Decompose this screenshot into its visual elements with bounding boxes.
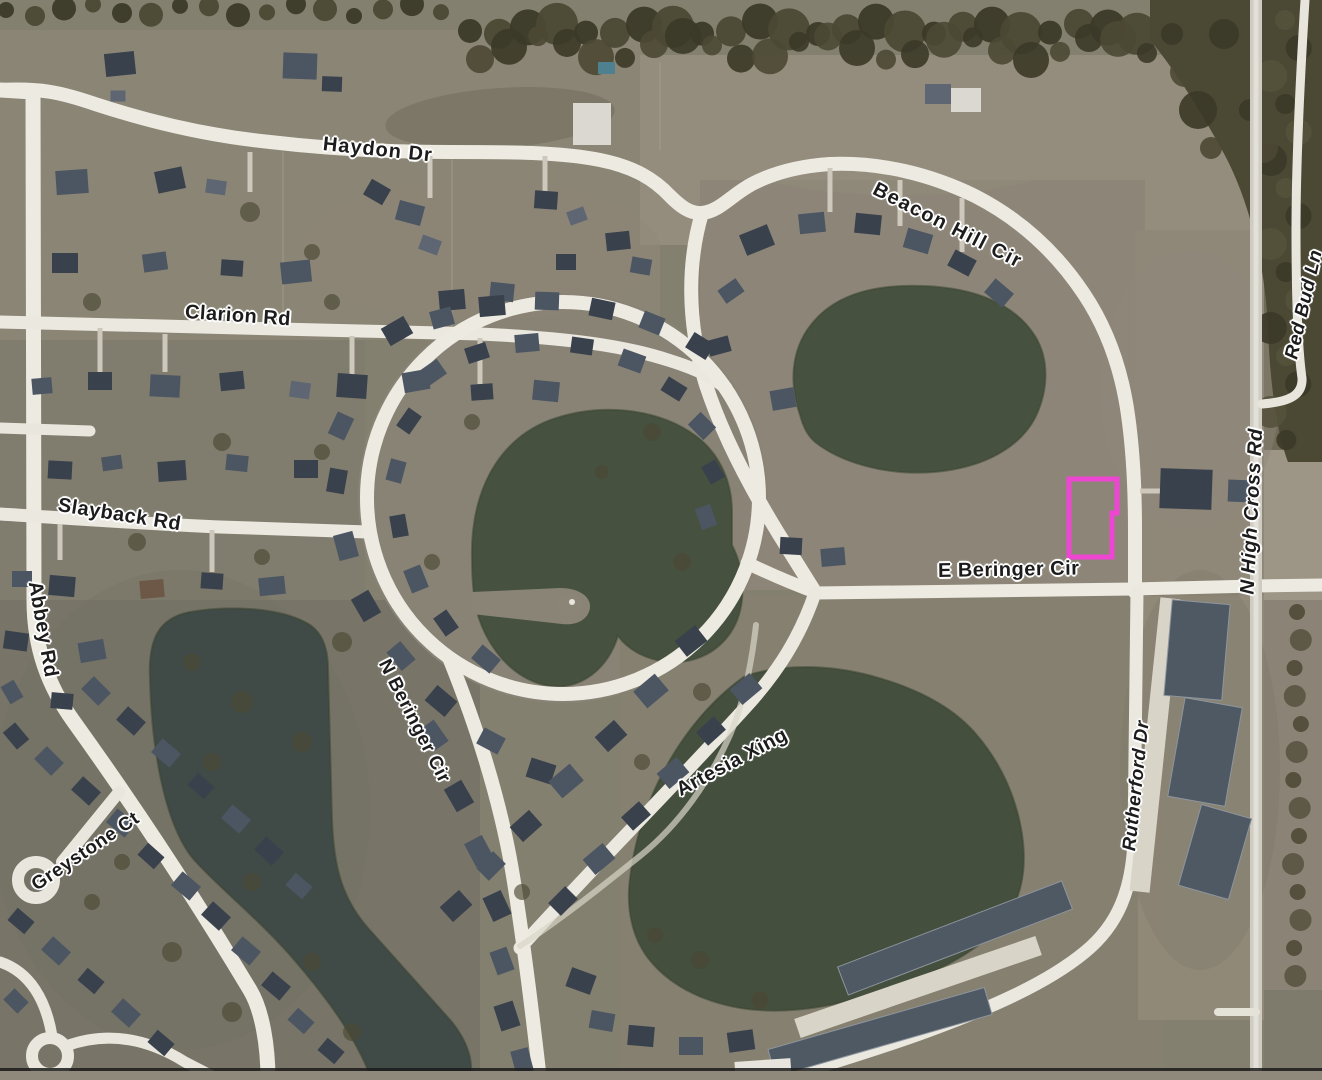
house-roof bbox=[780, 537, 803, 555]
house-roof bbox=[532, 380, 560, 403]
house-roof bbox=[52, 253, 78, 273]
tree bbox=[1290, 884, 1306, 900]
house-roof bbox=[727, 1029, 756, 1052]
tree bbox=[139, 3, 163, 27]
house-roof bbox=[50, 692, 73, 710]
house-roof bbox=[627, 1025, 655, 1047]
tree bbox=[226, 3, 250, 27]
house-roof bbox=[514, 333, 539, 353]
house-roof bbox=[556, 254, 576, 270]
house-roof bbox=[258, 576, 286, 597]
tree bbox=[716, 16, 746, 46]
house-roof bbox=[573, 103, 611, 145]
pond-beacon-hill bbox=[793, 286, 1045, 473]
tree bbox=[464, 414, 480, 430]
house-roof bbox=[104, 51, 136, 77]
tree bbox=[1200, 137, 1222, 159]
tree bbox=[673, 553, 691, 571]
tree bbox=[1038, 21, 1062, 45]
tree bbox=[1290, 909, 1312, 931]
tree bbox=[304, 244, 320, 260]
pool bbox=[598, 62, 615, 74]
tree bbox=[346, 8, 362, 24]
house-roof bbox=[139, 579, 164, 599]
house-roof bbox=[1159, 468, 1212, 510]
tree bbox=[1170, 57, 1200, 87]
tree bbox=[615, 48, 635, 68]
road-side-stub bbox=[0, 428, 90, 431]
tree bbox=[292, 732, 312, 752]
tree bbox=[1284, 965, 1306, 987]
house-roof bbox=[630, 256, 652, 275]
house-roof bbox=[220, 259, 243, 276]
house-roof bbox=[111, 91, 126, 102]
tree bbox=[647, 927, 663, 943]
tree bbox=[314, 444, 330, 460]
tree bbox=[789, 32, 809, 52]
image-edge-strip bbox=[0, 1071, 1322, 1080]
tree bbox=[1209, 19, 1239, 49]
house-roof bbox=[769, 387, 796, 411]
tree bbox=[1293, 716, 1309, 732]
tree bbox=[84, 894, 100, 910]
house-roof bbox=[48, 575, 76, 597]
house-roof bbox=[470, 383, 493, 400]
tree bbox=[1286, 940, 1302, 956]
house-roof bbox=[294, 460, 318, 478]
house-roof bbox=[478, 295, 506, 317]
tree bbox=[1275, 94, 1295, 114]
tree bbox=[693, 683, 711, 701]
tree bbox=[25, 6, 45, 26]
tree bbox=[1289, 604, 1305, 620]
tree bbox=[332, 632, 352, 652]
house-roof bbox=[798, 212, 826, 235]
aerial-map[interactable]: Haydon Dr Beacon Hill Cir Clarion Rd Sla… bbox=[0, 0, 1322, 1080]
house-roof bbox=[820, 547, 845, 567]
tree bbox=[114, 854, 130, 870]
tree bbox=[876, 50, 896, 70]
road-label-e-beringer-cir: E Beringer Cir bbox=[938, 558, 1080, 583]
house-roof bbox=[534, 190, 558, 210]
tree bbox=[1137, 43, 1157, 63]
tree bbox=[595, 465, 609, 479]
tree bbox=[643, 423, 661, 441]
house-roof bbox=[142, 251, 168, 272]
tree bbox=[231, 691, 253, 713]
house-roof bbox=[200, 572, 223, 589]
house-roof bbox=[570, 337, 594, 356]
house-roof bbox=[336, 373, 368, 399]
house-roof bbox=[854, 213, 882, 236]
house-roof bbox=[289, 381, 311, 400]
tree bbox=[213, 433, 231, 451]
tree bbox=[222, 1002, 242, 1022]
house-roof bbox=[438, 289, 466, 311]
map-canvas bbox=[0, 0, 1322, 1080]
house-roof bbox=[205, 179, 227, 196]
house-roof bbox=[3, 630, 29, 651]
tree bbox=[600, 18, 630, 48]
house-roof bbox=[157, 460, 186, 482]
tree bbox=[254, 549, 270, 565]
tree bbox=[433, 4, 449, 20]
tree bbox=[691, 951, 709, 969]
tree bbox=[128, 533, 146, 551]
house-roof bbox=[88, 372, 112, 390]
house-roof bbox=[322, 76, 343, 92]
tree bbox=[1289, 797, 1311, 819]
house-roof bbox=[55, 169, 89, 195]
tree bbox=[1275, 10, 1295, 30]
house-roof bbox=[925, 84, 951, 104]
tree bbox=[1285, 772, 1301, 788]
house-roof bbox=[48, 460, 73, 479]
tree bbox=[1284, 685, 1306, 707]
tree bbox=[1290, 629, 1312, 651]
tree bbox=[162, 942, 182, 962]
tree bbox=[751, 991, 769, 1009]
house-roof bbox=[535, 292, 560, 311]
tree bbox=[373, 0, 393, 19]
tree bbox=[424, 554, 440, 570]
house-roof bbox=[149, 374, 180, 398]
tree bbox=[1287, 660, 1303, 676]
tree bbox=[343, 1023, 361, 1041]
tree bbox=[514, 884, 530, 900]
tree bbox=[1013, 42, 1049, 78]
house-roof bbox=[283, 52, 318, 79]
tree bbox=[1291, 828, 1307, 844]
tree bbox=[1282, 853, 1304, 875]
house-roof bbox=[280, 259, 312, 284]
tree bbox=[1286, 741, 1308, 763]
tree bbox=[324, 294, 340, 310]
tree bbox=[1161, 23, 1183, 45]
tree bbox=[1050, 42, 1070, 62]
tree bbox=[203, 753, 221, 771]
island-dock bbox=[569, 599, 575, 605]
pond-island bbox=[558, 593, 582, 617]
tree bbox=[1276, 430, 1296, 450]
tree bbox=[1179, 91, 1217, 129]
tree bbox=[112, 3, 132, 23]
tree bbox=[634, 754, 650, 770]
tree bbox=[466, 45, 494, 73]
tree bbox=[83, 293, 101, 311]
house-roof bbox=[219, 371, 245, 391]
house-roof bbox=[951, 88, 981, 112]
tree bbox=[727, 45, 755, 73]
house-roof bbox=[225, 454, 249, 472]
house-roof bbox=[31, 377, 52, 395]
tree bbox=[458, 19, 482, 43]
tree bbox=[303, 953, 321, 971]
house-roof bbox=[101, 455, 123, 472]
image-edge-line bbox=[0, 1068, 1322, 1071]
tree bbox=[243, 873, 261, 891]
tree bbox=[183, 653, 201, 671]
tree bbox=[240, 202, 260, 222]
house-roof bbox=[605, 231, 631, 251]
tree bbox=[259, 4, 275, 20]
townhouse-row bbox=[1164, 600, 1230, 701]
tree bbox=[901, 40, 929, 68]
house-roof bbox=[679, 1037, 703, 1055]
